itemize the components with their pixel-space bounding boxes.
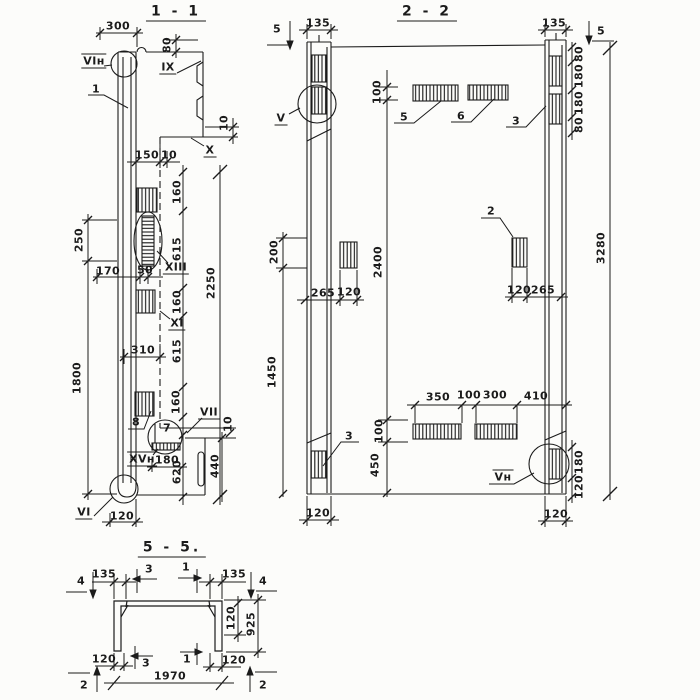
dim-160: 160 xyxy=(172,290,183,314)
detail-mark-IX: IX xyxy=(159,62,176,75)
dim-120: 120 xyxy=(306,508,330,519)
dim-160: 160 xyxy=(171,390,182,414)
embed-plate xyxy=(312,55,326,82)
dim-120: 120 xyxy=(574,475,585,499)
cut-mark-5: 5 xyxy=(597,26,605,37)
section-2-2-title: 2 - 2 xyxy=(397,5,457,22)
lift-loop xyxy=(137,48,146,53)
dim-135: 135 xyxy=(92,569,116,580)
dim-250: 250 xyxy=(74,228,85,252)
dim-80: 80 xyxy=(574,46,585,62)
embed-plate xyxy=(137,188,157,212)
dim-160: 160 xyxy=(172,180,183,204)
dim-135: 135 xyxy=(222,569,246,580)
detail-mark-VI: VI xyxy=(75,507,92,520)
callout-3: 3 xyxy=(512,116,520,127)
embed-plate xyxy=(512,238,527,267)
embed-plate xyxy=(136,290,155,313)
callout-5: 5 xyxy=(400,112,408,123)
dim-10: 10 xyxy=(219,115,230,131)
dim-2400: 2400 xyxy=(373,246,384,278)
callout-6: 6 xyxy=(457,111,465,122)
dim-80: 80 xyxy=(574,117,585,133)
dim-265: 265 xyxy=(311,288,335,299)
leader-VII xyxy=(187,418,202,433)
embed-strip xyxy=(468,85,508,100)
embed-plate xyxy=(549,94,562,124)
detail-mark-X: X xyxy=(204,145,217,158)
embed-plate xyxy=(135,392,154,416)
cut-mark-2: 2 xyxy=(259,680,267,691)
dim-135: 135 xyxy=(542,18,566,29)
dim-120: 120 xyxy=(226,606,237,630)
section-5-5-linework xyxy=(114,601,222,651)
dim-615: 615 xyxy=(172,339,183,363)
dim-1800: 1800 xyxy=(72,362,83,394)
detail-mark-XIII: XIII xyxy=(163,262,189,275)
section-2-2-linework xyxy=(298,33,569,494)
dim-120: 120 xyxy=(544,509,568,520)
dim-80: 80 xyxy=(162,37,173,53)
dim-170: 170 xyxy=(96,266,120,277)
embed-bar xyxy=(142,216,154,266)
dim-100: 100 xyxy=(374,419,385,443)
embed-angle xyxy=(152,443,180,450)
dim-2250: 2250 xyxy=(206,267,217,299)
dim-440: 440 xyxy=(210,454,221,478)
callout-1: 1 xyxy=(92,84,100,95)
dim-3280: 3280 xyxy=(596,232,607,264)
dim-100: 100 xyxy=(457,390,481,401)
bar-mark-3: 3 xyxy=(142,658,150,669)
dim-180: 180 xyxy=(574,91,585,115)
detail-mark-XVn: XVн xyxy=(127,452,157,467)
detail-mark-V: V xyxy=(275,113,288,126)
callout-7: 7 xyxy=(163,423,171,434)
detail-mark-VII: VII xyxy=(198,407,220,420)
dim-620: 620 xyxy=(172,460,183,484)
dim-300: 300 xyxy=(483,390,507,401)
cut-mark-4: 4 xyxy=(77,576,85,587)
dim-120: 120 xyxy=(337,287,361,298)
dim-50: 50 xyxy=(137,265,153,276)
bar-mark-1: 1 xyxy=(182,562,190,573)
cut-mark-5: 5 xyxy=(273,24,281,35)
dim-265: 265 xyxy=(531,285,555,296)
section-1-1-title: 1 - 1 xyxy=(146,5,206,22)
section-5-5-title: 5 - 5. xyxy=(138,541,206,558)
detail-mark-VIn: VIн xyxy=(81,54,106,69)
dim-410: 410 xyxy=(524,391,548,402)
leader-callout-1 xyxy=(88,95,128,108)
dim-350: 350 xyxy=(426,392,450,403)
shear-key xyxy=(197,96,203,120)
leader-V xyxy=(289,108,300,114)
callout-3: 3 xyxy=(345,431,353,442)
dim-120: 120 xyxy=(110,511,134,522)
detail-mark-Vn: Vн xyxy=(493,470,514,485)
dim-925: 925 xyxy=(246,612,257,636)
dim-1450: 1450 xyxy=(267,356,278,388)
channel-outline xyxy=(114,601,222,651)
cut-mark-2: 2 xyxy=(80,680,88,691)
dim-615: 615 xyxy=(172,237,183,261)
dim-120: 120 xyxy=(222,655,246,666)
leader-callout-3-bottom xyxy=(323,442,359,466)
column-bottom-cap xyxy=(118,486,136,497)
shear-key xyxy=(197,62,203,86)
dim-120: 120 xyxy=(507,285,531,296)
embed-plate xyxy=(312,87,326,114)
bar-mark-3: 3 xyxy=(145,564,153,575)
leader-callout-2 xyxy=(481,218,513,237)
embed-strip xyxy=(413,424,461,439)
technical-drawing-sheet: 1 - 1 2 - 2 5 - 5. 300 80 VIн 1 IX 10 X … xyxy=(0,0,700,700)
dim-135: 135 xyxy=(306,18,330,29)
dim-450: 450 xyxy=(370,453,381,477)
detail-circle-VIn xyxy=(111,51,137,77)
embed-plate xyxy=(340,242,357,268)
shear-key xyxy=(198,452,204,486)
embed-strip xyxy=(413,85,458,101)
bar-mark-1: 1 xyxy=(183,654,191,665)
leader-X xyxy=(191,138,204,146)
dim-310: 310 xyxy=(131,345,155,356)
dim-10: 10 xyxy=(223,416,234,432)
detail-mark-XI: XI xyxy=(168,318,185,331)
dim-300: 300 xyxy=(106,21,130,32)
dim-120: 120 xyxy=(92,654,116,665)
embed-plate xyxy=(549,449,562,479)
dim-180: 180 xyxy=(574,64,585,88)
cut-mark-4: 4 xyxy=(259,576,267,587)
dim-1970: 1970 xyxy=(154,671,186,682)
callout-2: 2 xyxy=(487,206,495,217)
dim-150: 150 xyxy=(135,150,159,161)
detail-circle-VI xyxy=(110,475,138,503)
callout-8: 8 xyxy=(132,417,140,428)
dim-180: 180 xyxy=(574,450,585,474)
dim-100: 100 xyxy=(372,80,383,104)
dim-10: 10 xyxy=(161,150,177,161)
drawing-canvas xyxy=(0,0,700,700)
dim-200: 200 xyxy=(269,240,280,264)
embed-plate xyxy=(549,56,562,86)
embed-strip xyxy=(475,424,517,439)
